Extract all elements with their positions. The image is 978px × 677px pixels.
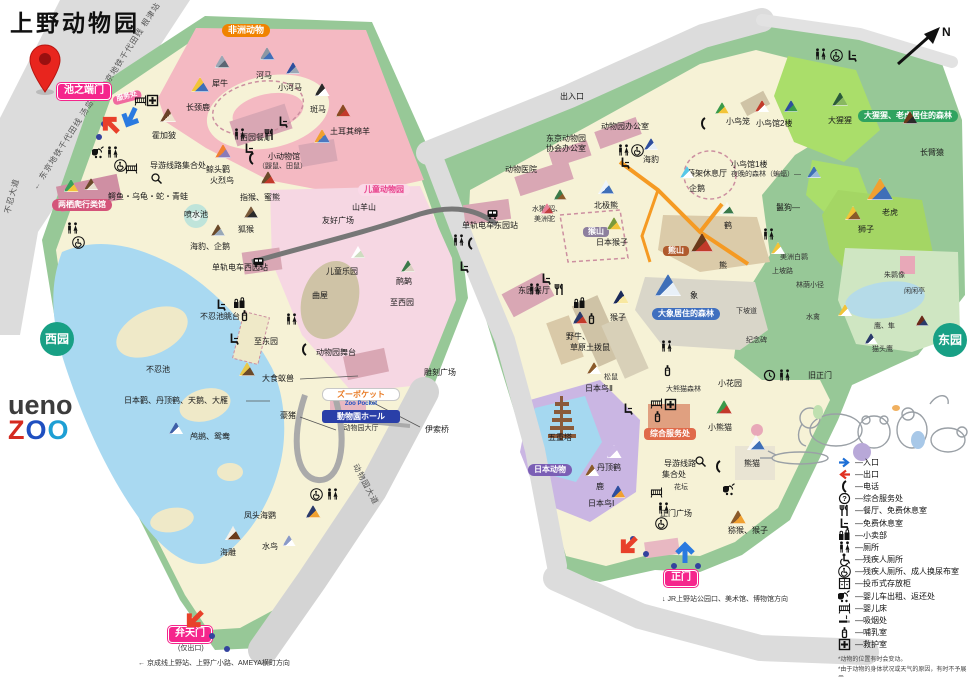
zone-badge: 综合服务处 [644, 428, 696, 440]
map-label: 豪猪 [280, 412, 296, 421]
legend-note: *由于动物的身体状况或天气的原因，有时不予展示。 [838, 666, 976, 677]
rest-area-icon [846, 49, 859, 62]
first-aid-icon [664, 398, 677, 411]
nursing-icon [651, 410, 664, 423]
map-label: 草原土拨鼠 [570, 344, 610, 353]
toilet-icon [762, 228, 775, 241]
smoking-icon [838, 614, 851, 627]
legend-label: —出口 [855, 469, 879, 480]
map-label: 北极熊 [594, 202, 618, 211]
nursing-icon [238, 309, 251, 322]
map-label: 猕猴、猴子 [728, 527, 768, 536]
entrance-arrow-icon [672, 540, 698, 566]
map-label: 象 [690, 292, 698, 301]
map-label: (仅出口) [178, 645, 204, 653]
toilet-icon [66, 222, 79, 235]
gate-badge: 池之端门 [57, 83, 111, 100]
first-aid-icon [838, 638, 851, 651]
map-label: 鳄鱼・乌龟・蛇・青蛙 [108, 193, 188, 202]
legend-row: —残疾人厕所 [838, 554, 976, 566]
map-label: 鹤 [724, 222, 732, 231]
map-label: 协会办公室 [546, 145, 586, 154]
map-label: 小熊猫 [708, 424, 732, 433]
phone-icon [838, 480, 851, 493]
ueno-zoo-logo: ueno ZOO [8, 393, 73, 443]
toilet-icon [106, 146, 119, 159]
map-label: 海豹、企鹅 [190, 243, 230, 252]
map-label: 导游线路集合处 [150, 162, 206, 171]
toilet-icon [660, 340, 673, 353]
logo-letter: O [48, 415, 70, 445]
map-label: 小动物馆 [268, 153, 300, 162]
map-label: 企鹅 [689, 185, 705, 194]
map-label: 鸬鹚、鸳鸯 [190, 433, 230, 442]
zone-badge: 东园 [933, 323, 967, 357]
zone-badge: 日本动物 [528, 464, 572, 476]
logo-letter: O [26, 415, 48, 445]
legend-label: —救护室 [855, 639, 887, 650]
map-label: 熊 [719, 262, 727, 271]
restaurant-icon [553, 283, 566, 296]
legend-row: —婴儿床 [838, 602, 976, 614]
legend-label: —吸烟处 [855, 615, 887, 626]
map-label: 大食蚁兽 [262, 375, 294, 384]
map-label: 纪念碑 [746, 337, 767, 345]
map-label: 小鸟馆1楼 [731, 161, 767, 170]
wheelchair-circle-icon [631, 144, 644, 157]
map-label: 鹿 [596, 483, 604, 492]
map-label: 东京动物园 [546, 135, 586, 144]
map-label: 花坛 [674, 484, 688, 492]
map-label: 导游线路 [664, 460, 696, 469]
legend-row: —出口 [838, 468, 976, 480]
map-label: 斑马 [310, 106, 326, 115]
legend-label: —综合服务处 [855, 493, 903, 504]
map-label: 火烈鸟 [210, 177, 234, 186]
entrance-arrow-icon [838, 456, 851, 469]
map-label: 大猩猩 [828, 117, 852, 126]
map-label: 老虎 [882, 209, 898, 218]
zoo-hall-cn: 动物园大厅 [322, 423, 400, 433]
legend-row: —小卖部 [838, 529, 976, 541]
map-label: 下坡道 [736, 308, 757, 316]
map-label: 野牛、 [566, 333, 590, 342]
map-label: 小河马 [278, 84, 302, 93]
map-label: 长臂猿 [920, 149, 944, 158]
map-label: 小花园 [718, 380, 742, 389]
map-label: 鲸头鹳 [206, 166, 230, 175]
map-label: 出入口 [560, 93, 584, 102]
crib-icon [650, 397, 663, 410]
legend-label: —电话 [855, 481, 879, 492]
map-label: 水鸟 [262, 543, 278, 552]
map-label: 河马 [256, 72, 272, 81]
rest-area-icon [622, 402, 635, 415]
nursing-icon [661, 364, 674, 377]
rest-area-icon [458, 260, 471, 273]
map-label: 动物园舞台 [316, 349, 356, 358]
legend-label: —婴儿床 [855, 603, 887, 614]
map-legend: —入口—出口—电话?—综合服务处—餐厅、免费休息室—免费休息室—小卖部—厕所—残… [838, 456, 976, 677]
map-label: 大熊猫森林 [666, 386, 701, 394]
rest-area-icon [228, 332, 241, 345]
stroller-icon [838, 590, 851, 603]
map-label: 凤头海鹦 [244, 512, 276, 521]
map-label: 猴子 [610, 314, 626, 323]
map-label: 动物医院 [505, 166, 537, 175]
map-label: 不忍池 [146, 366, 170, 375]
compass-label: N [942, 25, 951, 39]
map-label: 朱鹮像 [884, 272, 905, 280]
crib-icon [838, 602, 851, 615]
toilet-icon [838, 541, 851, 554]
map-label: 林荫小径 [796, 282, 824, 290]
rest-area-icon [619, 156, 632, 169]
wheelchair-circle-icon [655, 517, 668, 530]
legend-row: —婴儿车出租、返还处 [838, 590, 976, 602]
map-label: 小鸟笼 [726, 118, 750, 127]
map-label: 水禽 [806, 314, 820, 322]
map-label: 伊索桥 [425, 426, 449, 435]
wheelchair-circle-icon [72, 236, 85, 249]
map-label: 海雕 [220, 549, 236, 558]
toilet-icon [285, 313, 298, 326]
logo-line2: ZOO [8, 418, 73, 443]
legend-label: —投币式存放柜 [855, 578, 911, 589]
toilet-icon [657, 502, 670, 515]
first-aid-icon [146, 94, 159, 107]
rest-area-icon [540, 272, 553, 285]
legend-row: —厕所 [838, 541, 976, 553]
map-label: 犀牛 [212, 80, 228, 89]
legend-row: —投币式存放柜 [838, 578, 976, 590]
map-label: 动物园办公室 [601, 123, 649, 132]
zoo-hall-badge: 動物園ホール [322, 410, 400, 423]
zoo-pocket-en: Zoo Pocket [322, 401, 400, 407]
legend-label: —残疾人厕所、成人换尿布室 [855, 566, 959, 577]
map-label: 五重塔 [548, 434, 572, 443]
map-label: 闲闲亭 [904, 288, 925, 296]
shop-badges: ズーポケット Zoo Pocket 動物園ホール 动物园大厅 [322, 388, 400, 433]
map-label: 长颈鹿 [186, 104, 210, 113]
toilet-icon [814, 48, 827, 61]
exit-arrow-icon [838, 468, 851, 481]
map-label: 不忍池眺台 [200, 313, 240, 322]
map-label: 猫头鹰 [872, 346, 893, 354]
map-label: 指猴、蜜熊 [240, 194, 280, 203]
phone-icon [298, 343, 311, 356]
map-label: 鬣狗— [776, 204, 800, 213]
map-label: 至西园 [390, 299, 414, 308]
phone-icon [697, 117, 710, 130]
map-label: ↓ JR上野站公园口、美术馆、博物馆方向 [662, 596, 788, 604]
rest-area-icon [215, 298, 228, 311]
legend-label: —小卖部 [855, 530, 887, 541]
zone-badge: 两栖爬行类馆 [52, 199, 112, 211]
legend-row: —哺乳室 [838, 627, 976, 639]
zoo-map: N 上野动物园 ueno [0, 0, 978, 677]
info-icon: ? [838, 492, 851, 505]
map-label: 单轨电车东园站 [462, 222, 518, 231]
page-title: 上野动物园 [10, 4, 140, 38]
zone-badge: 猴山 [583, 227, 609, 237]
phone-icon [464, 237, 477, 250]
legend-label: —厕所 [855, 542, 879, 553]
legend-label: —入口 [855, 457, 879, 468]
legend-row: —入口 [838, 456, 976, 468]
gate-dot [96, 134, 102, 140]
rest-area-icon [838, 517, 851, 530]
map-label: 鸸鹋 [396, 278, 412, 287]
map-label: 丹顶鹤 [597, 464, 621, 473]
svg-text:?: ? [842, 494, 847, 503]
map-label: 喷水池 [184, 211, 208, 220]
map-label: 儿童乐园 [326, 268, 358, 277]
toilet-icon [778, 369, 791, 382]
map-label: 狐猴 [238, 226, 254, 235]
legend-label: —餐厅、免费休息室 [855, 505, 927, 516]
map-label: 土耳其绵羊 [330, 128, 370, 137]
magnifier-icon [150, 172, 163, 185]
gate-dot [209, 633, 215, 639]
map-label: 熊猫 [744, 460, 760, 469]
map-label: 海豹 [643, 156, 659, 165]
map-label: 松鼠 [604, 374, 618, 382]
toilet-icon [528, 283, 541, 296]
map-label: 至东园 [254, 338, 278, 347]
clock-icon [763, 369, 776, 382]
map-label: 美洲驼 [534, 216, 555, 224]
map-label: ← 京成线上野站、上野广小路、AMEYA横町方向 [138, 660, 290, 668]
gate-badge: 正门 [664, 570, 698, 587]
logo-letter: Z [8, 415, 26, 445]
stroller-icon [92, 146, 105, 159]
map-label: 曲屋 [312, 292, 328, 301]
legend-label: —哺乳室 [855, 627, 887, 638]
magnifier-icon [694, 455, 707, 468]
gate-dot [224, 646, 230, 652]
map-label: 山羊山 [352, 204, 376, 213]
map-label: 集合处 [662, 471, 686, 480]
zone-badge: 熊山 [663, 246, 689, 256]
legend-label: —婴儿车出租、返还处 [855, 591, 935, 602]
legend-notes: *动物的位置有时会变动。*由于动物的身体状况或天气的原因，有时不予展示。 [838, 656, 976, 677]
map-label: 日本鸟Ⅰ [588, 500, 614, 509]
map-label: 小鸟馆2楼 [756, 120, 792, 129]
legend-row: —免费休息室 [838, 517, 976, 529]
legend-row: ?—综合服务处 [838, 493, 976, 505]
map-label: 美洲白鹮 [780, 254, 808, 262]
phone-icon [245, 152, 258, 165]
map-label: （鼹鼠、田鼠） [258, 163, 307, 171]
map-label: 鹰、隼 [874, 323, 895, 331]
legend-row: —餐厅、免费休息室 [838, 505, 976, 517]
zone-badge: 非洲动物 [222, 24, 270, 37]
legend-label: —免费休息室 [855, 518, 903, 529]
map-label: 狮子 [858, 226, 874, 235]
stroller-icon [723, 483, 736, 496]
legend-row: —救护室 [838, 639, 976, 651]
train-icon [486, 208, 499, 221]
wheelchair-circle-icon [830, 49, 843, 62]
restaurant-icon [838, 504, 851, 517]
nursing-icon [838, 626, 851, 639]
shop-icon [838, 529, 851, 542]
map-label: 旧正门 [808, 372, 832, 381]
wheelchair-icon [838, 553, 851, 566]
zoo-pocket-badge: ズーポケット [322, 388, 400, 401]
zone-badge: 大象居住的森林 [652, 308, 720, 320]
legend-row: —吸烟处 [838, 614, 976, 626]
toilet-icon [233, 128, 246, 141]
phone-icon [712, 460, 725, 473]
map-label: 日本鹳、丹顶鹤、天鹅、大雁 [124, 397, 228, 406]
zone-badge: 儿童动物园 [358, 184, 410, 196]
gate-dot [643, 551, 649, 557]
map-label: 夜晚的森林（蝙蝠）— [731, 171, 801, 179]
map-label: 上坡路 [772, 268, 793, 276]
legend-label: —残疾人厕所 [855, 554, 903, 565]
restaurant-icon [263, 128, 276, 141]
legend-row: —电话 [838, 480, 976, 492]
nursing-icon [585, 312, 598, 325]
rest-area-icon [277, 115, 290, 128]
locker-icon [838, 577, 851, 590]
wheelchair-circle-icon [310, 488, 323, 501]
shop-icon [573, 297, 586, 310]
train-icon [252, 256, 265, 269]
map-label: 霍加狓 [152, 132, 176, 141]
map-label: 日本猴子 [596, 239, 628, 248]
map-label: 友好广场 [322, 217, 354, 226]
legend-note: *动物的位置有时会变动。 [838, 656, 976, 666]
zone-badge: 西园 [40, 322, 74, 356]
map-label: 日本鸟Ⅱ [585, 385, 613, 394]
map-label: 雕刻广场 [424, 369, 456, 378]
crib-icon [125, 162, 138, 175]
toilet-icon [326, 488, 339, 501]
wheelchair-circle-icon [838, 565, 851, 578]
legend-row: —残疾人厕所、成人换尿布室 [838, 566, 976, 578]
crib-icon [650, 486, 663, 499]
